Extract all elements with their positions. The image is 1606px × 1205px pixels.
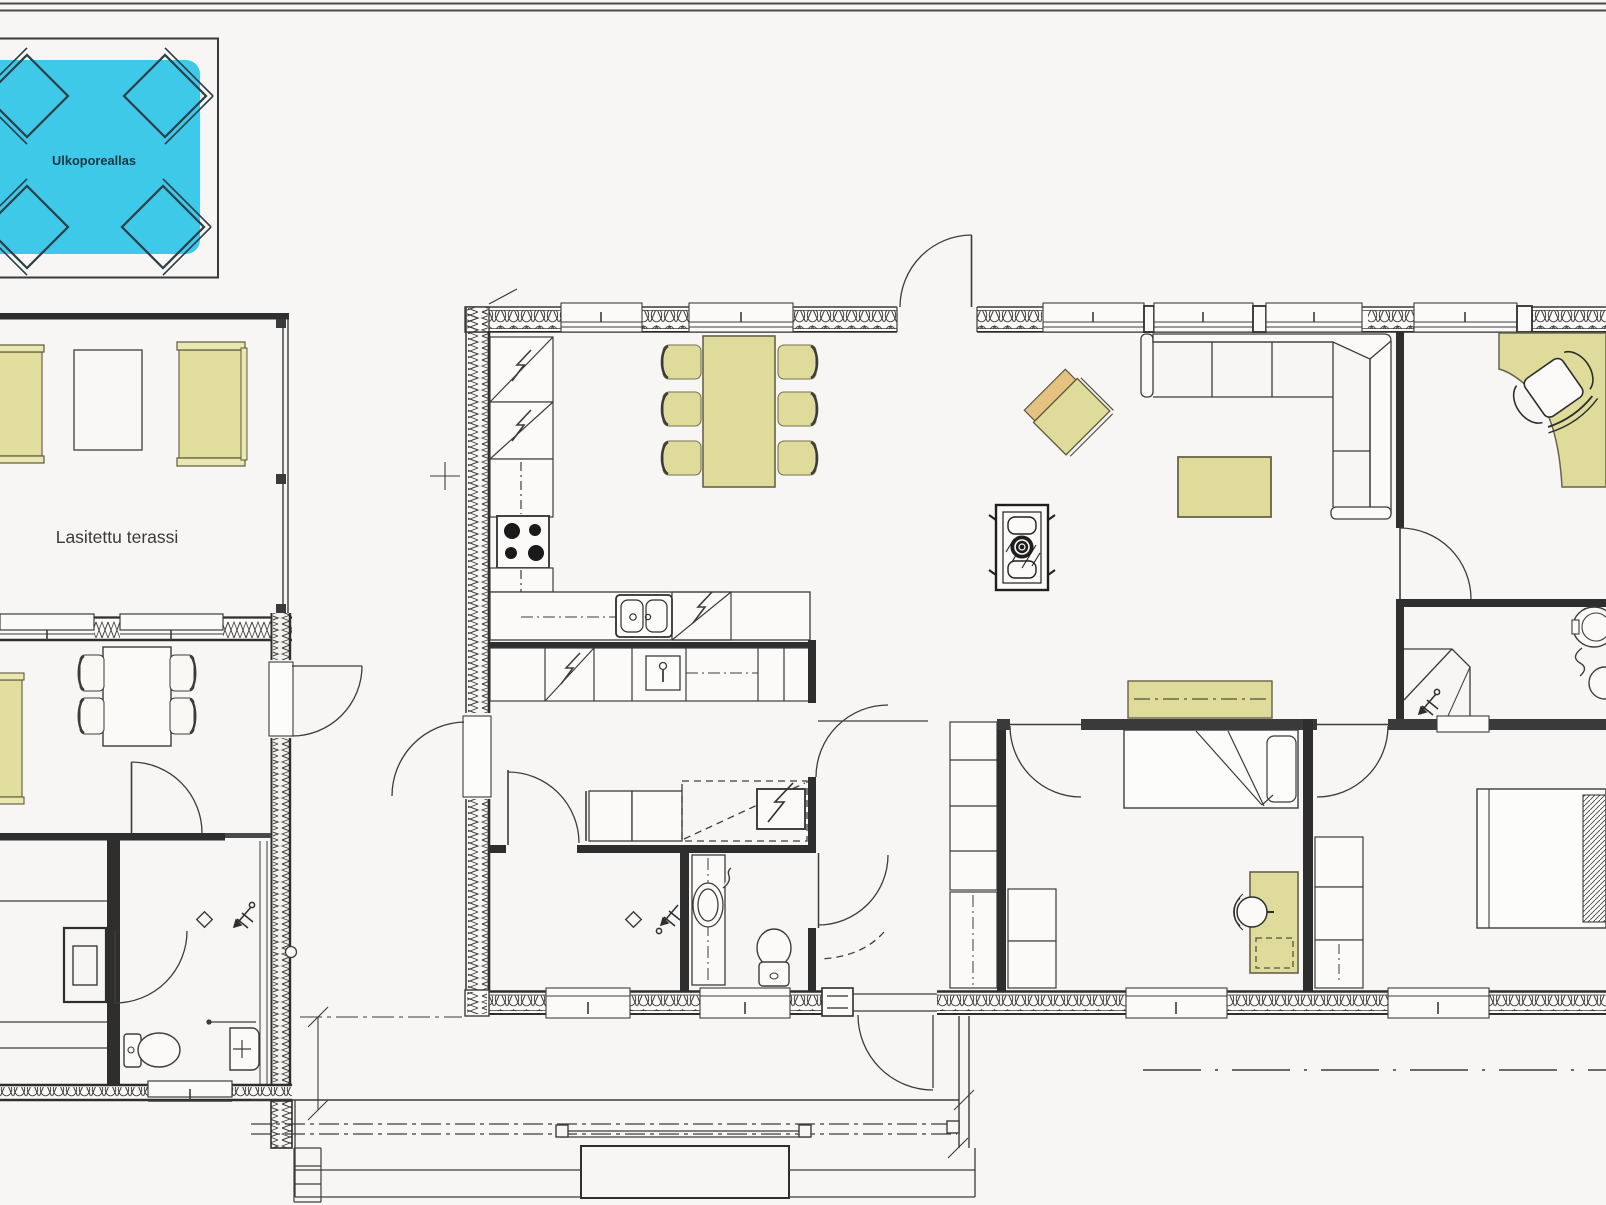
svg-text:Ulkoporeallas: Ulkoporeallas (52, 153, 136, 168)
svg-text:Lasitettu terassi: Lasitettu terassi (56, 527, 179, 547)
